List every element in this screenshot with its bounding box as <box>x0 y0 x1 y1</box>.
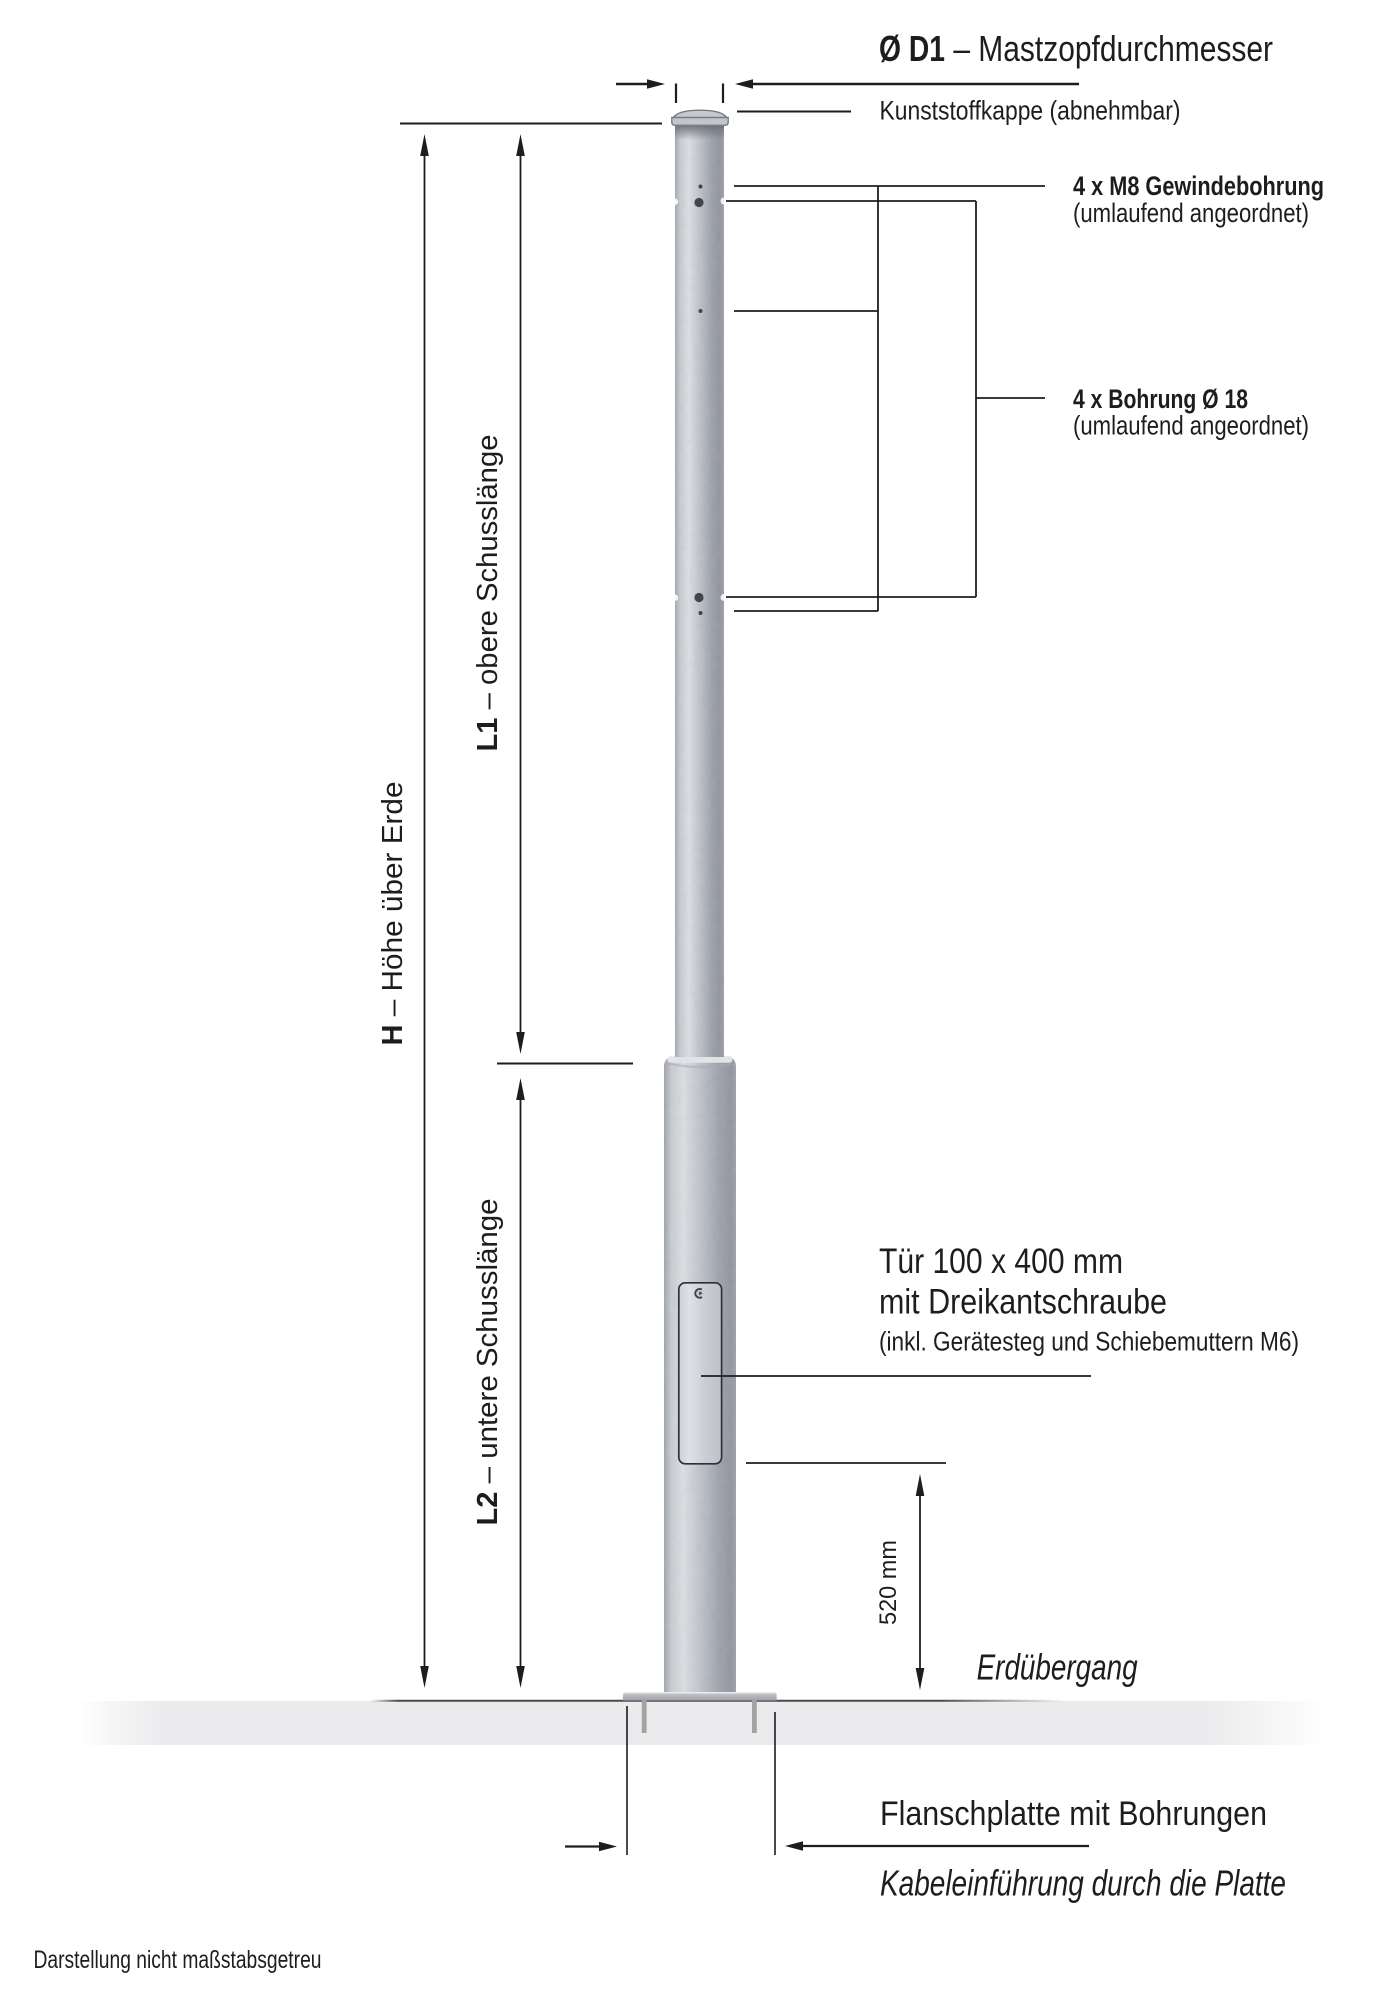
svg-text:L1 – obere Schusslänge: L1 – obere Schusslänge <box>472 435 504 752</box>
svg-text:4 x M8 Gewindebohrung: 4 x M8 Gewindebohrung <box>1073 171 1324 201</box>
svg-text:520 mm: 520 mm <box>875 1540 902 1625</box>
svg-text:(inkl. Gerätesteg und Schiebem: (inkl. Gerätesteg und Schiebemuttern M6) <box>879 1327 1299 1357</box>
svg-text:(umlaufend angeordnet): (umlaufend angeordnet) <box>1073 198 1309 228</box>
svg-text:mit Dreikantschraube: mit Dreikantschraube <box>879 1283 1167 1322</box>
svg-text:Kunststoffkappe (abnehmbar): Kunststoffkappe (abnehmbar) <box>880 96 1181 126</box>
svg-text:Darstellung nicht maßstabsgetr: Darstellung nicht maßstabsgetreu <box>34 1946 322 1974</box>
svg-text:4 x Bohrung Ø 18: 4 x Bohrung Ø 18 <box>1073 384 1248 414</box>
svg-text:(umlaufend angeordnet): (umlaufend angeordnet) <box>1073 411 1309 441</box>
svg-text:Tür 100 x 400 mm: Tür 100 x 400 mm <box>879 1242 1123 1281</box>
svg-text:Kabeleinführung durch die Plat: Kabeleinführung durch die Platte <box>880 1863 1286 1904</box>
svg-text:H – Höhe über Erde: H – Höhe über Erde <box>377 782 409 1046</box>
svg-text:Ø D1 – Mastzopfdurchmesser: Ø D1 – Mastzopfdurchmesser <box>879 28 1273 69</box>
svg-text:Flanschplatte mit Bohrungen: Flanschplatte mit Bohrungen <box>880 1795 1267 1833</box>
svg-text:Erdübergang: Erdübergang <box>977 1647 1138 1688</box>
svg-text:L2 – untere Schusslänge: L2 – untere Schusslänge <box>472 1199 504 1526</box>
